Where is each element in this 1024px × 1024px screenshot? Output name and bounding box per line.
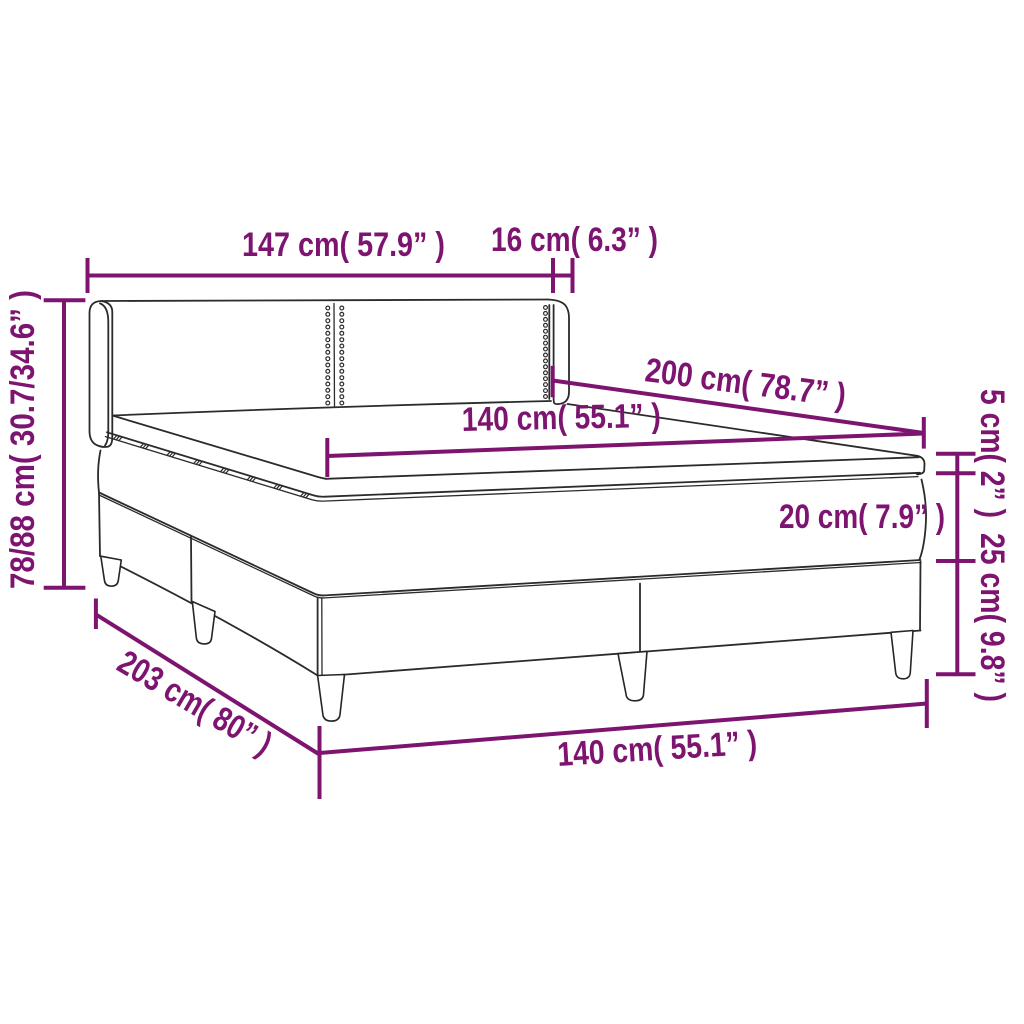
svg-text:16 cm( 6.3” ): 16 cm( 6.3” ) — [491, 221, 658, 259]
svg-text:25 cm( 9.8” ): 25 cm( 9.8” ) — [973, 533, 1011, 702]
svg-text:78/88 cm( 30.7/34.6” ): 78/88 cm( 30.7/34.6” ) — [4, 290, 42, 589]
svg-text:147 cm( 57.9” ): 147 cm( 57.9” ) — [242, 226, 445, 264]
svg-text:5 cm( 2” ): 5 cm( 2” ) — [973, 389, 1011, 518]
svg-text:20 cm( 7.9” ): 20 cm( 7.9” ) — [779, 498, 945, 536]
svg-text:140 cm( 55.1” ): 140 cm( 55.1” ) — [461, 397, 661, 439]
